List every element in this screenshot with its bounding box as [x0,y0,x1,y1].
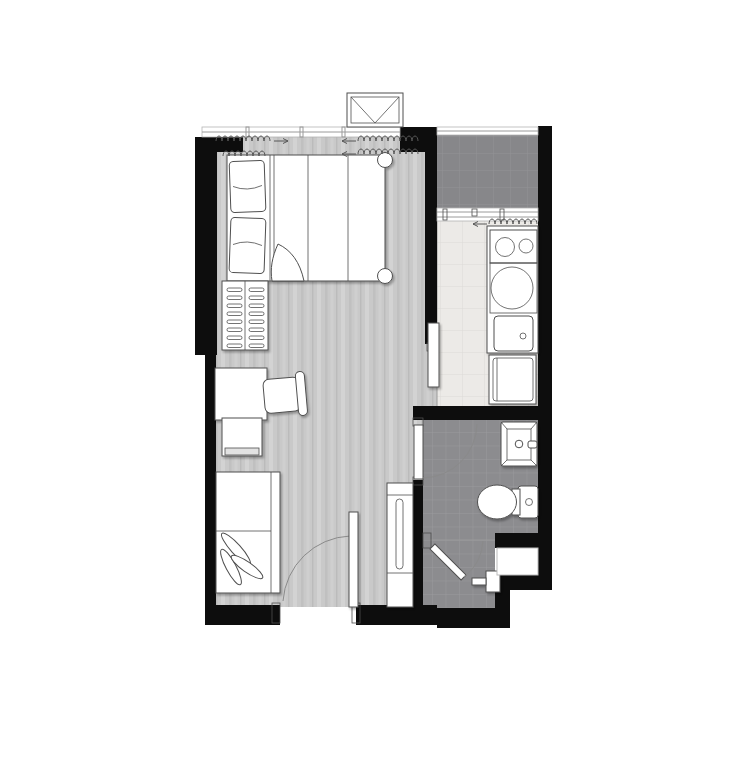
kitchen-counter [487,226,538,353]
wall-niche-bottom [495,573,552,590]
bed-post [378,153,393,168]
entry-partition [349,512,358,607]
wall-shower-divider [495,533,552,548]
toilet-bowl [478,485,517,519]
wall-left-upper [195,137,217,355]
sliding-panel-kitchen [428,323,439,387]
pillow [229,217,266,273]
bed-post [378,269,393,284]
wall-bathroom-left [413,480,423,607]
toilet [478,485,539,519]
wall-bottom-left [205,605,280,625]
pillow [229,160,266,212]
floor-plan-drawing [0,0,746,768]
air-conditioner-outdoor-unit [347,93,403,127]
double-bed [227,153,393,284]
balcony-rail-band [437,127,538,135]
bathroom-sink [501,422,537,466]
wall-left-lower [205,355,216,607]
bedroom-window-band [202,127,400,137]
wall-bedroom-kitchen [425,127,437,344]
floor-plan-page [0,0,746,768]
bathroom-door-leaf [414,425,423,479]
kitchen-sink [494,316,533,351]
wall-top-left [195,137,243,152]
wall-shower-bottom [437,608,510,628]
sofa [216,472,280,593]
balcony-floor [437,133,538,208]
side-table [222,418,262,456]
toilet-tank [518,486,538,518]
service-niche [497,548,538,575]
faucet [515,440,523,448]
wardrobe-with-mirror [387,483,413,607]
wall-right-outer [538,126,552,548]
refrigerator [489,355,536,404]
faucet-handle [528,441,537,448]
hanger-rack [222,281,268,350]
stove-two-burner [490,230,537,263]
wall-bottom-mid [356,605,437,625]
wall-bathroom-top [413,406,552,420]
desk [215,368,267,420]
